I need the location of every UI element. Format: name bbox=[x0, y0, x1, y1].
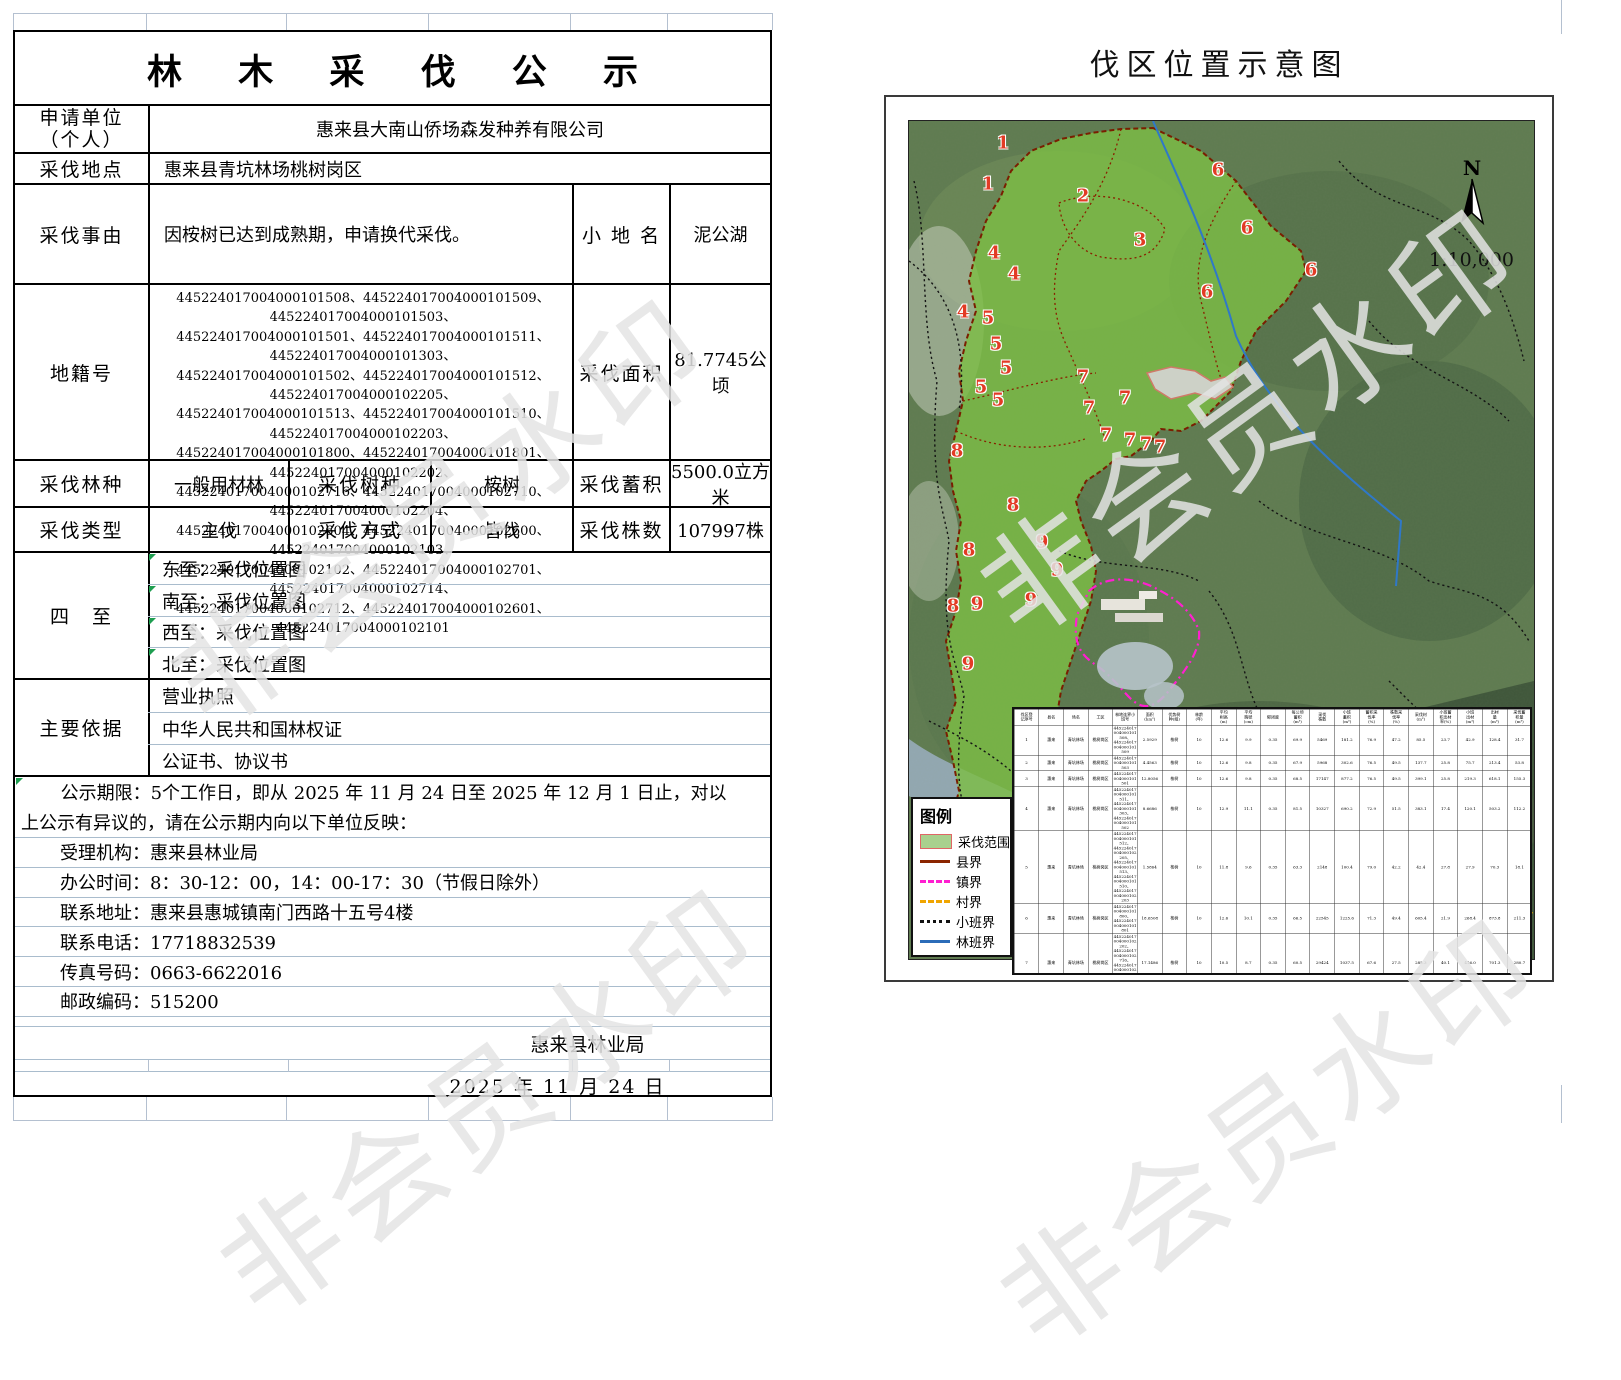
legend-symbol-icon bbox=[920, 940, 950, 943]
reason-value: 因桉树已达到成熟期，申请换代采伐。 bbox=[148, 185, 572, 283]
map-legend: 图例 采伐范围 县界 镇界 村界 小班界 bbox=[911, 797, 1012, 957]
basis-row: 主要依据 营业执照 中华人民共和国林权证 公证书、协议书 bbox=[15, 680, 770, 777]
legend-item: 采伐范围 bbox=[920, 831, 1010, 851]
legend-items: 采伐范围 县界 镇界 村界 小班界 林班 bbox=[920, 831, 1010, 951]
method-label: 采伐方式 bbox=[288, 508, 430, 551]
place-name-value: 泥公湖 bbox=[669, 185, 770, 283]
harvest-col-header: 优势树 种(组) bbox=[1162, 709, 1187, 725]
legend-symbol-icon bbox=[920, 880, 950, 883]
contact-line: 传真号码：0663-6622016 bbox=[15, 957, 770, 987]
footer-date: 2025 年 11 月 24 日 bbox=[450, 1072, 666, 1099]
harvest-type-row: 采伐类型 主伐 采伐方式 皆伐 采伐株数 107997株 bbox=[15, 508, 770, 553]
basis-label: 主要依据 bbox=[15, 680, 148, 775]
legend-item: 县界 bbox=[920, 851, 1010, 871]
harvest-table-row: 2惠来青坑林场桃树岗区4452240170040001015034.4563桉树… bbox=[1014, 755, 1532, 771]
four-bounds-label: 四 至 bbox=[15, 553, 148, 678]
contact-list: 受理机构：惠来县林业局办公时间：8：30-12：00，14：00-17：30（节… bbox=[15, 838, 770, 1017]
north-label: N bbox=[1463, 156, 1481, 180]
harvest-col-header: 小班 蓄积 (m³) bbox=[1335, 709, 1360, 725]
harvest-table-row: 4惠来青坑林场桃树岗区445224017004000101511、 445224… bbox=[1014, 787, 1532, 831]
harvest-table-body: 1惠来青坑林场桃树岗区445224017004000101508、 445224… bbox=[1014, 725, 1532, 975]
footer-date-row: 2025 年 11 月 24 日 bbox=[15, 1072, 770, 1099]
harvest-col-header: 平均 树高 (m) bbox=[1211, 709, 1236, 725]
tree-count-label: 采伐株数 bbox=[572, 508, 669, 551]
forest-kind-label: 采伐林种 bbox=[15, 461, 148, 506]
legend-item: 小班界 bbox=[920, 911, 1010, 931]
harvest-table-row: 3惠来青坑林场桃树岗区44522401700400010150112.8056桉… bbox=[1014, 771, 1532, 787]
species-value: 桉树 bbox=[430, 461, 572, 506]
legend-title: 图例 bbox=[920, 803, 1010, 827]
harvest-table-row: 7惠来青坑林场桃树岗区445224017004000102202、 445224… bbox=[1014, 934, 1532, 976]
footer-org-row: 惠来县林业局 bbox=[15, 1027, 770, 1060]
harvest-col-header: 平均 胸径 (cm) bbox=[1236, 709, 1261, 725]
harvest-col-header: 林龄 (年) bbox=[1187, 709, 1212, 725]
footer-org: 惠来县林业局 bbox=[530, 1030, 644, 1057]
forest-kind-value: 一般用材林 bbox=[148, 461, 288, 506]
spacer-row bbox=[15, 1017, 770, 1027]
contact-line: 办公时间：8：30-12：00，14：00-17：30（节假日除外） bbox=[15, 868, 770, 898]
harvest-type-label: 采伐类型 bbox=[15, 508, 148, 551]
forest-kind-row: 采伐林种 一般用材林 采伐树种 桉树 采伐蓄积 5500.0立方米 bbox=[15, 461, 770, 508]
harvest-detail-table: 伐区登 记序号县名场名工区林地连界小班号面积 (hm²)优势树 种(组)林龄 (… bbox=[1012, 707, 1532, 975]
form-title-row: 林 木 采 伐 公 示 bbox=[15, 32, 770, 106]
tree-count-value: 107997株 bbox=[669, 508, 770, 551]
harvest-area-label: 采伐面积 bbox=[572, 285, 669, 459]
cadastral-label: 地籍号 bbox=[15, 285, 148, 459]
harvest-col-header: 伐区登 记序号 bbox=[1014, 709, 1039, 725]
map-scale: 1:10,000 bbox=[1429, 249, 1514, 271]
cadastral-value: 445224017004000101508、445224017004000101… bbox=[148, 285, 572, 459]
contact-line: 受理机构：惠来县林业局 bbox=[15, 838, 770, 868]
notice-line2: 上公示有异议的，请在公示期内向以下单位反映： bbox=[21, 809, 764, 839]
harvest-col-header: 每公顷 蓄积 (m³) bbox=[1285, 709, 1310, 725]
harvest-notice-form: 林 木 采 伐 公 示 申请单位 （个人） 惠来县大南山侨场森发种养有限公司 采… bbox=[13, 30, 772, 1097]
thin-grid-row bbox=[15, 1060, 770, 1072]
harvest-col-header: 工区 bbox=[1088, 709, 1113, 725]
harvest-col-header: 小班蓄 积出材 率(%) bbox=[1433, 709, 1458, 725]
harvest-col-header: 面积 (hm²) bbox=[1137, 709, 1162, 725]
basis-notary: 公证书、协议书 bbox=[148, 745, 770, 777]
harvest-table-row: 5惠来青坑林场桃树岗区445224017004000101512、 445224… bbox=[1014, 831, 1532, 904]
harvest-col-header: 县名 bbox=[1039, 709, 1064, 725]
contact-line: 联系电话：17718832539 bbox=[15, 927, 770, 957]
location-label: 采伐地点 bbox=[15, 154, 148, 183]
basis-forest-cert: 中华人民共和国林权证 bbox=[148, 713, 770, 745]
harvest-table-head-row: 伐区登 记序号县名场名工区林地连界小班号面积 (hm²)优势树 种(组)林龄 (… bbox=[1014, 709, 1532, 725]
reason-row: 采伐事由 因桉树已达到成熟期，申请换代采伐。 小 地 名 泥公湖 bbox=[15, 185, 770, 285]
legend-item: 村界 bbox=[920, 891, 1010, 911]
legend-symbol-icon bbox=[920, 860, 950, 863]
four-bounds-row: 四 至 东至：采伐位置图 南至：采伐位置图 西至：采伐位置图 北至：采伐位置图 bbox=[15, 553, 770, 680]
volume-value: 5500.0立方米 bbox=[669, 461, 770, 506]
bound-south: 南至：采伐位置图 bbox=[148, 585, 770, 617]
method-value: 皆伐 bbox=[430, 508, 572, 551]
contact-line: 邮政编码：515200 bbox=[15, 987, 770, 1017]
volume-label: 采伐蓄积 bbox=[572, 461, 669, 506]
harvest-col-header: 株数采 伐率 (%) bbox=[1384, 709, 1409, 725]
applicant-row: 申请单位 （个人） 惠来县大南山侨场森发种养有限公司 bbox=[15, 106, 770, 154]
bound-east: 东至：采伐位置图 bbox=[148, 553, 770, 585]
harvest-col-header: 小班 出材 (m³) bbox=[1458, 709, 1483, 725]
contact-line: 联系地址：惠来县惠城镇南门西路十五号4楼 bbox=[15, 898, 770, 928]
species-label: 采伐树种 bbox=[288, 461, 430, 506]
notice-period: 公示期限：5个工作日，即从 2025 年 11 月 24 日至 2025 年 1… bbox=[15, 777, 770, 838]
harvest-type-value: 主伐 bbox=[148, 508, 288, 551]
harvest-area-value: 81.7745公顷 bbox=[669, 285, 770, 459]
form-title: 林 木 采 伐 公 示 bbox=[15, 32, 770, 106]
harvest-col-header: 采伐 株数 bbox=[1310, 709, 1335, 725]
place-name-label: 小 地 名 bbox=[572, 185, 669, 283]
legend-item: 林班界 bbox=[920, 931, 1010, 951]
harvest-col-header: 场名 bbox=[1064, 709, 1089, 725]
map-title: 伐区位置示意图 bbox=[884, 40, 1554, 84]
harvest-col-header: 出材 量 (m³) bbox=[1482, 709, 1507, 725]
harvest-col-header: 林地连界小班号 bbox=[1113, 709, 1138, 725]
harvest-table-row: 6惠来青坑林场桃树岗区445224017004000101800、 445224… bbox=[1014, 904, 1532, 934]
location-value: 惠来县青坑林场桃树岗区 bbox=[148, 154, 770, 183]
legend-item: 镇界 bbox=[920, 871, 1010, 891]
legend-symbol-icon bbox=[920, 920, 950, 923]
legend-symbol-icon bbox=[920, 834, 952, 849]
applicant-label: 申请单位 （个人） bbox=[15, 106, 148, 152]
cadastral-row: 地籍号 445224017004000101508、44522401700400… bbox=[15, 285, 770, 461]
harvest-col-header: 蓄积采 伐率 (%) bbox=[1359, 709, 1384, 725]
harvest-col-header: 采伐材 (m³) bbox=[1409, 709, 1434, 725]
location-row: 采伐地点 惠来县青坑林场桃树岗区 bbox=[15, 154, 770, 185]
harvest-table-row: 1惠来青坑林场桃树岗区445224017004000101508、 445224… bbox=[1014, 725, 1532, 755]
notice-line1: 公示期限：5个工作日，即从 2025 年 11 月 24 日至 2025 年 1… bbox=[21, 779, 764, 809]
harvest-col-header: 采伐蓄 积量 (m³) bbox=[1507, 709, 1532, 725]
basis-license: 营业执照 bbox=[148, 680, 770, 713]
bound-west: 西至：采伐位置图 bbox=[148, 617, 770, 648]
reason-label: 采伐事由 bbox=[15, 185, 148, 283]
applicant-value: 惠来县大南山侨场森发种养有限公司 bbox=[148, 106, 770, 152]
bound-north: 北至：采伐位置图 bbox=[148, 648, 770, 680]
legend-symbol-icon bbox=[920, 900, 950, 903]
harvest-col-header: 郁闭度 bbox=[1261, 709, 1286, 725]
